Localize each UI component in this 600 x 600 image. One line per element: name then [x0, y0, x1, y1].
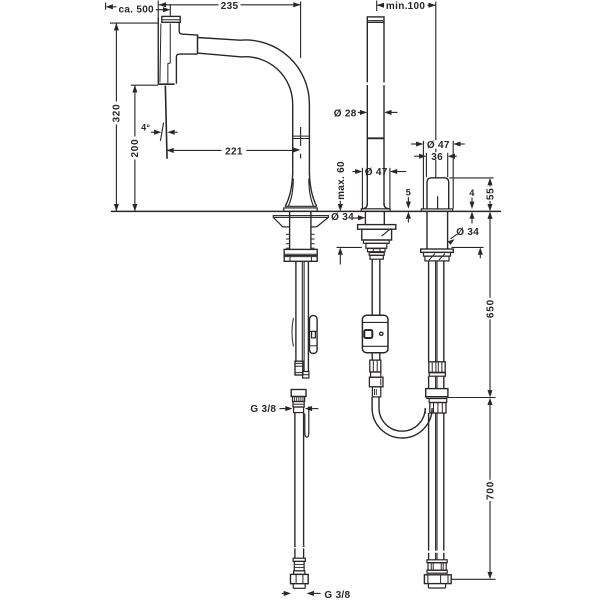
svg-text:min.100: min.100 — [386, 1, 425, 12]
svg-text:5: 5 — [406, 187, 411, 197]
svg-text:320: 320 — [112, 103, 123, 122]
svg-text:4°: 4° — [141, 122, 150, 132]
svg-text:G 3/8: G 3/8 — [250, 404, 276, 415]
svg-text:Ø 34: Ø 34 — [331, 212, 354, 223]
svg-text:55: 55 — [485, 187, 496, 200]
svg-text:Ø 47: Ø 47 — [427, 140, 450, 151]
svg-text:235: 235 — [221, 1, 239, 12]
svg-text:ca. 500: ca. 500 — [118, 4, 154, 15]
svg-text:Ø 28: Ø 28 — [334, 108, 357, 119]
svg-text:36: 36 — [431, 152, 443, 163]
svg-text:650: 650 — [485, 299, 496, 318]
svg-text:4: 4 — [469, 188, 474, 198]
svg-text:Ø 34: Ø 34 — [456, 227, 479, 238]
svg-text:G 3/8: G 3/8 — [324, 590, 350, 600]
svg-text:200: 200 — [130, 138, 141, 157]
svg-text:700: 700 — [485, 481, 496, 500]
svg-text:221: 221 — [225, 146, 243, 157]
svg-text:max. 60: max. 60 — [336, 161, 347, 200]
